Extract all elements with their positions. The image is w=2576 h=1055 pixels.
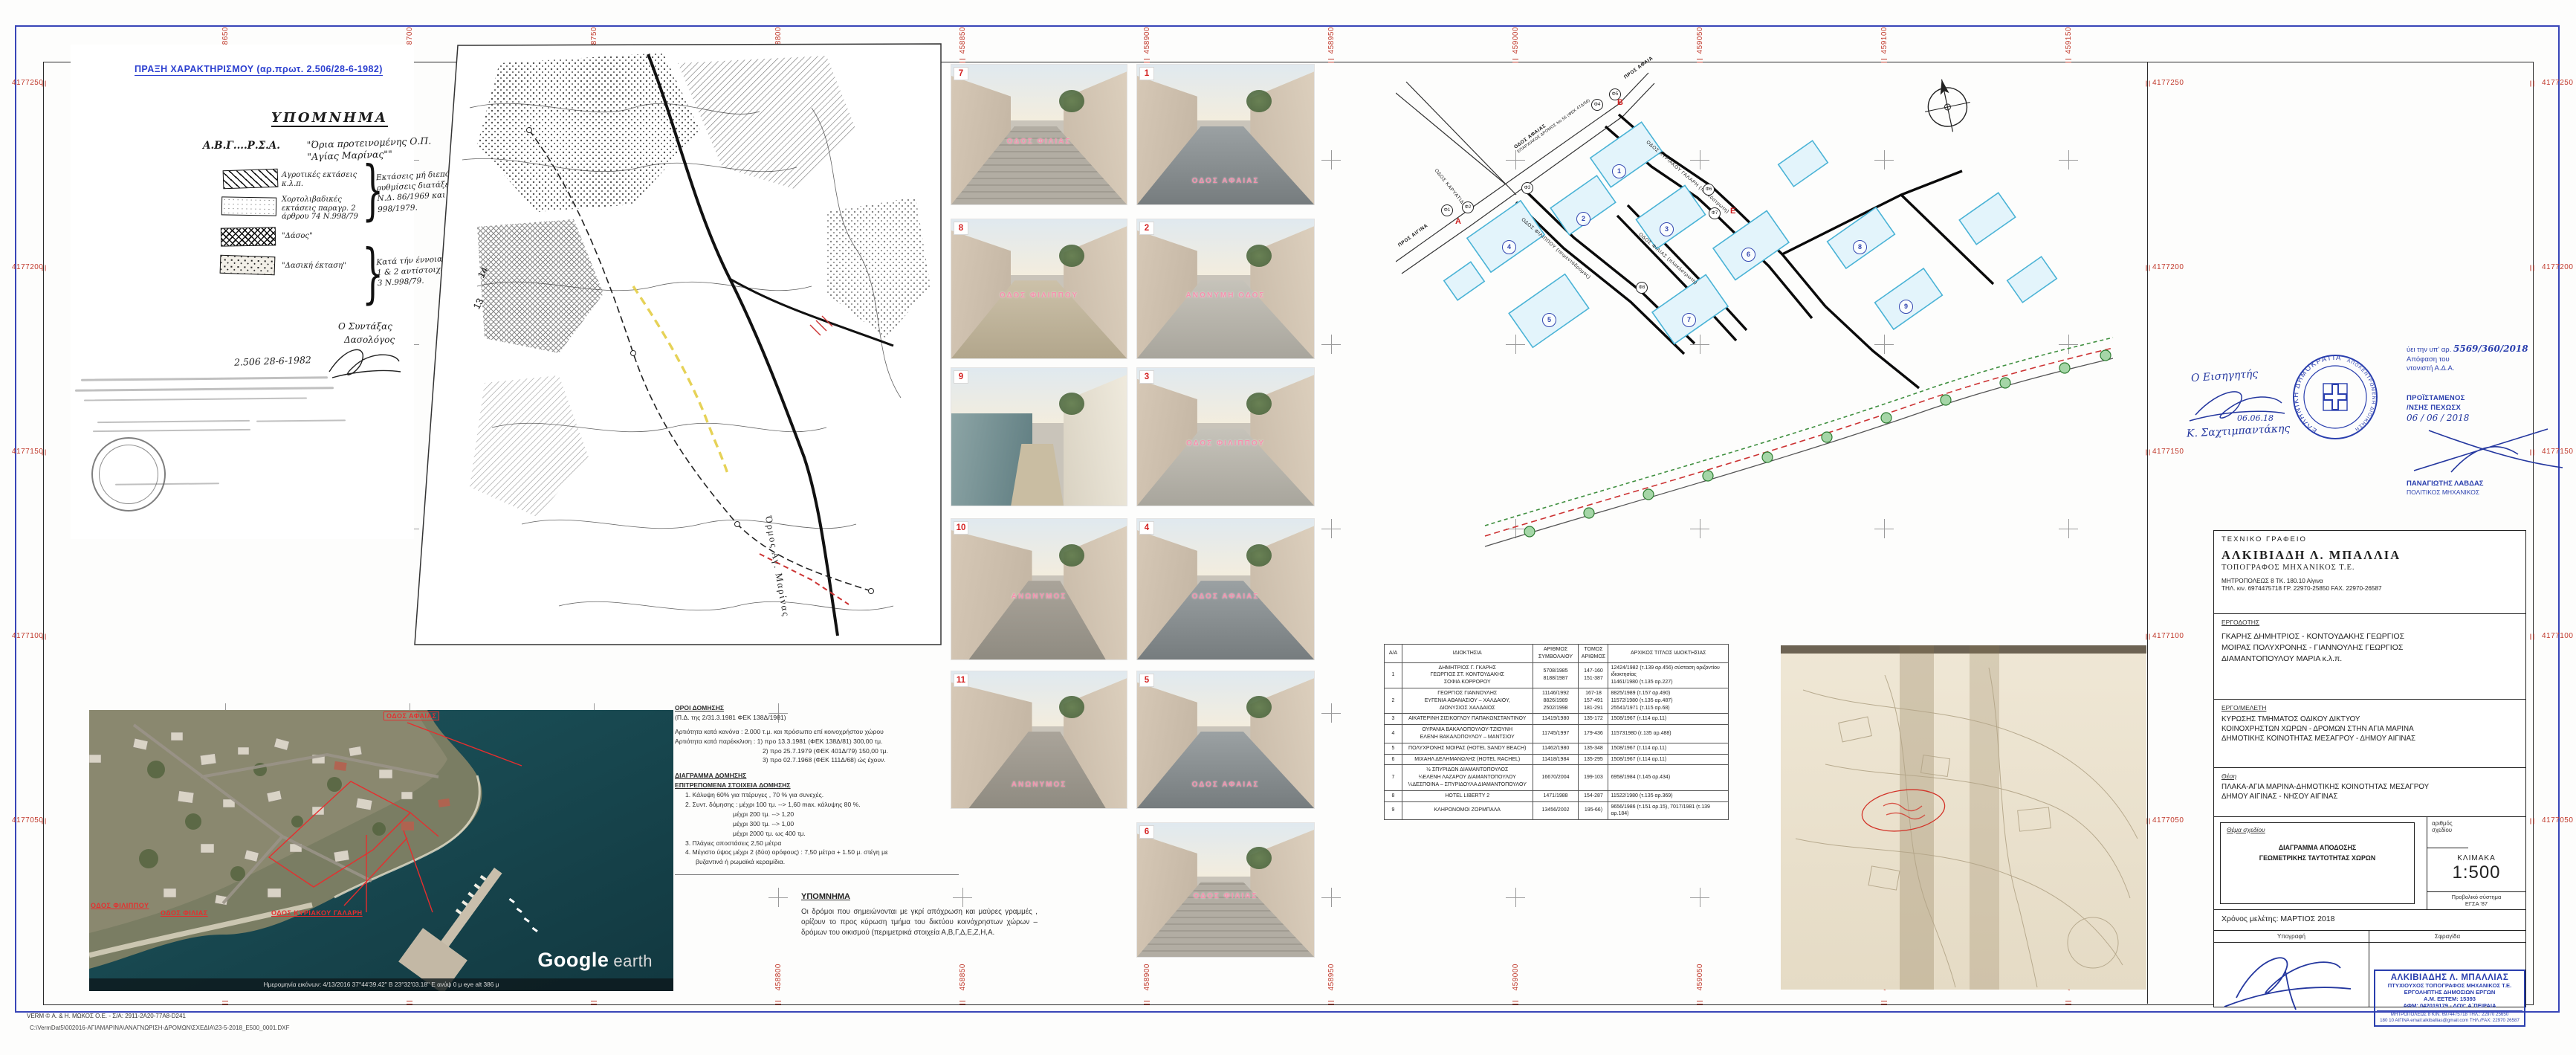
grid-label: 4177250 [12, 79, 43, 87]
subject-line-1: ΔΙΑΓΡΑΜΜΑ ΑΠΟΔΟΣΗΣ [2227, 844, 2408, 851]
grid-tick [2146, 450, 2150, 456]
north-arrow-icon [1921, 74, 1973, 134]
project-line: ΔΗΜΟΤΙΚΗΣ ΚΟΙΝΟΤΗΤΑΣ ΜΕΣΑΓΡΟΥ - ΔΗΜΟΥ ΑΙ… [2221, 735, 2518, 743]
boundary-vertex-Β: Β [1617, 98, 1623, 107]
parcel-number-3: 3 [1660, 222, 1674, 236]
terms-line: 3) προ 02.7.1968 (ΦΕΚ 111Δ/68) ώς έχουν. [675, 755, 959, 765]
tree-symbol [1524, 526, 1535, 537]
table-cell-contract: 11418/1984 [1533, 754, 1579, 765]
project-line: ΚΥΡΩΣΗΣ ΤΜΗΜΑΤΟΣ ΟΔΙΚΟΥ ΔΙΚΤΥΟΥ [2221, 715, 2518, 723]
office-address: ΜΗΤΡΟΠΟΛΕΩΣ 8 ΤΚ. 180.10 Αίγινα [2221, 578, 2518, 584]
legend-label-forest-area: "Δασική έκταση" [282, 262, 360, 271]
table-cell-title: 1508/1967 (τ.114 αρ.11) [1608, 743, 1729, 754]
google-wordmark: Google [537, 949, 609, 971]
photo-street-label: ΟΔΟΣ ΦΙΛΙΠΠΟΥ [1137, 439, 1314, 448]
table-row: 6ΜΙΧΑΗΛ ΔΕΛΗΜΑΝΩΛΗΣ (HOTEL RACHEL)11418/… [1385, 754, 1729, 765]
table-row: 1ΔΗΜΗΤΡΙΟΣ Γ. ΓΚΑΡΗΣΓΕΩΡΓΙΟΣ ΣΤ. ΚΟΝΤΟΥΔ… [1385, 662, 1729, 688]
photo-tree [1246, 245, 1272, 267]
grid-tick [42, 819, 46, 825]
photo-number-badge: 1 [1140, 68, 1153, 80]
grid-tick [1144, 1001, 1150, 1004]
photo-tree [1246, 393, 1272, 415]
smudged-text-line [256, 419, 346, 422]
grid-tick [959, 59, 965, 62]
engineer-stamp: ΑΛΚΙΒΙΑΔΗΣ Λ. ΜΠΑΛΛΙΑΣ ΠΤΥΧΙΟΥΧΟΣ ΤΟΠΟΓΡ… [2374, 969, 2525, 1027]
grid-label: 4177250 [2542, 79, 2573, 87]
grid-label: 4177050 [2152, 816, 2184, 825]
street-photo-7: ΟΔΟΣ ΦΙΛΙΑΣ7 [951, 65, 1127, 204]
stamp-line: 180 10 ΑΙΓΙΝΑ email:alkiballias@gmail.co… [2377, 1017, 2522, 1023]
photo-number-badge: 11 [954, 674, 968, 686]
terms-line: 1. Κάλυψη 60% για πτέρυγες , 70 % για συ… [675, 790, 959, 800]
drawing-number-label: αριθμός [2432, 820, 2464, 827]
photo-street-label: ΟΔΟΣ ΑΦΑΙΑΣ [1137, 781, 1314, 789]
terms-line: 2) προ 25.7.1979 (ΦΕΚ 401Δ/79) 150,00 τμ… [675, 746, 959, 756]
table-row: 3ΑΙΚΑΤΕΡΙΝΗ ΣΙΣΙΚΟΓΛΟΥ ΠΑΠΑΚΩΝΣΤΑΝΤΙΝΟΥ1… [1385, 714, 1729, 725]
grid-label: 4177100 [2152, 632, 2184, 640]
street-photo-5: ΟΔΟΣ ΑΦΑΙΑΣ5 [1137, 671, 1314, 808]
photo-number-badge: 6 [1140, 826, 1153, 838]
table-cell-contract: 11146/19928826/19892502/1998 [1533, 688, 1579, 713]
table-row: 2ΓΕΩΡΓΙΟΣ ΓΙΑΝΝΟΥΛΗΣΕΥΓΕΝΙΑ ΑΘΑΝΑΣΙΟΥ – … [1385, 688, 1729, 713]
cad-linework [1396, 59, 2135, 580]
approval-signature [2407, 425, 2570, 477]
svg-text:ΑΠΟΚΕΝΤΡΩΜΕΝΗ ΔΙΟΙΚΗΣΗ: ΑΠΟΚΕΝΤΡΩΜΕΝΗ ΔΙΟΙΚΗΣΗ [2346, 358, 2376, 432]
old-boundary-map-scan [1781, 645, 2146, 990]
photo-street-label: ΟΔΟΣ ΦΙΛΙΑΣ [1137, 892, 1314, 900]
grid-tick [2531, 81, 2534, 87]
terms-line: 2. Συντ. δόμησης : μέχρι 100 τμ. --> 1,6… [675, 800, 959, 810]
photo-number-badge: 7 [954, 68, 968, 80]
table-cell-tome: 154-287 [1579, 790, 1608, 801]
tree-symbol [1941, 395, 1951, 405]
satellite-status-bar: Ημερομηνία εικόνων: 4/13/2016 37°44'39.4… [89, 978, 673, 991]
photos-note-title: ΥΠΟΜΝΗΜΑ [801, 892, 1038, 901]
project-label: ΕΡΓΟ/ΜΕΛΕΤΗ [2221, 704, 2518, 712]
signature-cell: Υπογραφή [2214, 931, 2369, 1007]
projection-cell: Προβολικό σύστημα ΕΓΣΑ '87 [2427, 891, 2525, 910]
grid-label: 4177200 [12, 263, 43, 271]
table-cell-contract: 11419/1980 [1533, 714, 1579, 725]
grid-label: 458900 [1143, 964, 1151, 990]
street-photo-3: ΟΔΟΣ ΦΙΛΙΠΠΟΥ3 [1137, 368, 1314, 506]
approval-number: 5569/360/2018 [2453, 343, 2528, 354]
table-cell-contract: 13456/2002 [1533, 801, 1579, 820]
approval-name: ΠΑΝΑΓΙΩΤΗΣ ΛΑΒΔΑΣ [2407, 480, 2576, 488]
grid-tick [2146, 81, 2150, 87]
grid-tick [2146, 265, 2150, 271]
stamp-caption: Σφραγίδα [2369, 931, 2525, 943]
grid-label: 459100 [1880, 27, 1889, 54]
grid-tick [1697, 1001, 1703, 1004]
subject-box: Θέμα σχεδίου ΔΙΑΓΡΑΜΜΑ ΑΠΟΔΟΣΗΣ ΓΕΩΜΕΤΡΙ… [2220, 822, 2415, 904]
parcel-number-1: 1 [1612, 164, 1626, 178]
tree-symbol [1703, 471, 1713, 481]
table-cell-title: 1508/1967 (τ.114 αρ.11) [1608, 754, 1729, 765]
grid-label: 459050 [1696, 964, 1704, 990]
legend-swatch-forest [221, 227, 276, 246]
table-row: 9ΚΛΗΡΟΝΟΜΟΙ ΖΟΡΜΠΑΛΑ13456/2002195-66)965… [1385, 801, 1729, 820]
photo-number-badge: 4 [1140, 522, 1153, 534]
office-label: ΤΕΧΝΙΚΟ ΓΡΑΦΕΙΟ [2221, 535, 2518, 543]
photo-street-label: ΟΔΟΣ ΦΙΛΙΠΠΟΥ [951, 291, 1127, 300]
grid-tick [591, 1001, 597, 1004]
stamp-line: ΕΡΓΟΛΗΠΤΗΣ ΔΗΜΟΣΙΩΝ ΕΡΓΩΝ [2377, 989, 2522, 996]
round-stamp [91, 437, 166, 512]
grid-tick [1144, 59, 1150, 62]
photo-tree [1246, 544, 1272, 567]
street-photo-2: ΑΝΩΝΥΜΗ ΟΔΟΣ2 [1137, 219, 1314, 358]
satellite-image: ΟΔΟΣ ΑΦΑΙΑΣ ΟΔΟΣ ΦΙΛΙΠΠΟΥ ΟΔΟΣ ΦΙΛΙΑΣ ΟΔ… [89, 710, 673, 991]
boundary-vertex-Α: Α [1455, 217, 1461, 226]
table-cell-owner: ΓΕΩΡΓΙΟΣ ΓΙΑΝΝΟΥΛΗΣΕΥΓΕΝΙΑ ΑΘΑΝΑΣΙΟΥ – Χ… [1402, 688, 1533, 713]
stamp-line: ΜΗΤΡΟΠΟΛΕΩΣ 8 ΚΙΝ. 6974475718 ΤΗΛ.: 2297… [2377, 1010, 2522, 1017]
stamp-line: Α.Μ. ΕΕΤΕΜ: 15393 [2377, 996, 2522, 1002]
stamp-line: ΠΤΥΧΙΟΥΧΟΣ ΤΟΠΟΓΡΑΦΟΣ ΜΗΧΑΝΙΚΟΣ Τ.Ε. [2377, 982, 2522, 989]
signature-row: Υπογραφή Σφραγίδα ΑΛΚΙΒΙΑΔΗΣ Λ. ΜΠΑΛΛΙΑΣ… [2214, 931, 2525, 1007]
dxf-file-path: C:\VermDat5\002016-ΑΓΙΑΜΑΡΙΝΑ\ΑΝΑΓΝΩΡΙΣΗ… [30, 1025, 290, 1031]
employer-line: ΔΙΑΜΑΝΤΟΠΟΥΛΟΥ ΜΑΡΙΑ κ.λ.π. [2221, 654, 2518, 663]
table-cell-tome: 199-103 [1579, 765, 1608, 790]
cad-street-plan: ΟΔΟΣ ΑΦΑΙΑΣΕΠΑΡΧΙΑΚΟΣ ΔΡΟΜΟΣ Νο 56 (ΦΕΚ … [1396, 59, 2135, 580]
table-row: 7½ ΣΠΥΡΙΔΩΝ ΔΙΑΜΑΝΤΟΠΟΥΛΟΣ¼ΕΛΕΝΗ ΛΑΖΑΡΟΥ… [1385, 765, 1729, 790]
title-block: ΤΕΧΝΙΚΟ ΓΡΑΦΕΙΟ ΑΛΚΙΒΙΑΔΗ Λ. ΜΠΑΛΛΙΑ ΤΟΠ… [2213, 530, 2526, 1007]
approval-head: /ΝΣΗΣ ΠΕΧΩΣΧ [2407, 404, 2576, 413]
photo-tree [1059, 245, 1084, 267]
titleblock-divider [2147, 62, 2148, 1004]
boundary-code: Α.Β.Γ....Ρ.Σ.Α. [203, 140, 280, 152]
photo-point-Φ8: Φ8 [1636, 282, 1648, 294]
state-seal: ΕΛΛΗΝΙΚΗ ΔΗΜΟΚΡΑΤΙΑ ΑΠΟΚΕΝΤΡΩΜΕΝΗ ΔΙΟΙΚΗ… [2291, 348, 2380, 459]
sat-label-galari: ΟΔΟΣ ΚΥΡΙΑΚΟΥ ΓΑΛΑΡΗ [271, 909, 363, 917]
table-header: ΑΡΙΘΜΟΣ ΣΥΜΒΟΛΑΙΟΥ [1533, 645, 1579, 663]
grid-label: 4177100 [2542, 632, 2573, 640]
tree-symbol [1822, 432, 1832, 442]
grid-tick [42, 81, 46, 87]
tree-symbol [2000, 378, 2010, 388]
location-line: ΠΛΑΚΑ-ΑΓΙΑ ΜΑΡΙΝΑ-ΔΗΜΟΤΙΚΗΣ ΚΟΙΝΟΤΗΤΑΣ Μ… [2221, 783, 2518, 791]
parcel-number-6: 6 [1741, 248, 1755, 262]
table-cell-title: 8825/1989 (τ.157 αρ.490)11572/1980 (τ.13… [1608, 688, 1729, 713]
table-cell-owner: HOTEL LIBERTY 2 [1402, 790, 1533, 801]
grid-label: 4177200 [2542, 263, 2573, 271]
grid-label: 458850 [959, 964, 967, 990]
grid-tick [222, 1001, 228, 1004]
photo-point-Φ7: Φ7 [1709, 207, 1721, 219]
forest-date-line: 2.506 28-6-1982 [234, 354, 311, 368]
employer-line: ΓΚΑΡΗΣ ΔΗΜΗΤΡΙΟΣ - ΚΟΝΤΟΥΔΑΚΗΣ ΓΕΩΡΓΙΟΣ [2221, 632, 2518, 641]
smudged-text-line [84, 397, 307, 401]
table-cell-tome: 179-436 [1579, 725, 1608, 743]
location-section: Θέση ΠΛΑΚΑ-ΑΓΙΑ ΜΑΡΙΝΑ-ΔΗΜΟΤΙΚΗΣ ΚΟΙΝΟΤΗ… [2214, 768, 2525, 817]
photo-number-badge: 9 [954, 371, 968, 383]
table-header: ΙΔΙΟΚΤΗΣΙΑ [1402, 645, 1533, 663]
photo-point-Φ3: Φ3 [1521, 182, 1533, 194]
photo-street-label: ΟΔΟΣ ΑΦΑΙΑΣ [1137, 177, 1314, 185]
approval-role: ΠΟΛΙΤΙΚΟΣ ΜΗΧΑΝΙΚΟΣ [2407, 488, 2576, 497]
employer-line: ΜΟΙΡΑΣ ΠΟΛΥΧΡΟΝΗΣ - ΓΙΑΝΝΟΥΛΗΣ ΓΕΩΡΓΙΟΣ [2221, 643, 2518, 652]
photo-point-Φ2: Φ2 [1462, 201, 1474, 213]
subject-line-2: ΓΕΩΜΕΤΡΙΚΗΣ ΤΑΥΤΟΤΗΤΑΣ ΧΩΡΩΝ [2227, 854, 2408, 862]
table-cell-contract: 5708/19858188/1987 [1533, 662, 1579, 688]
grid-label: 4177150 [2152, 448, 2184, 456]
grid-label: 459150 [2065, 27, 2073, 54]
grid-tick [1328, 59, 1334, 62]
office-name: ΑΛΚΙΒΙΑΔΗ Λ. ΜΠΑΛΛΙΑ [2221, 548, 2518, 563]
table-cell-aa: 5 [1385, 743, 1402, 754]
approval-line: ντονιστή Α.Δ.Α. [2407, 364, 2576, 373]
photos-note-body: Οι δρόμοι που σημειώνονται με γκρί απόχρ… [801, 907, 1038, 939]
table-row: 5ΠΟΛΥΧΡΟΝΗΣ ΜΟΙΡΑΣ (HOTEL SANDY BEACH)11… [1385, 743, 1729, 754]
table-row: 8HOTEL LIBERTY 21471/1988154-28711522/19… [1385, 790, 1729, 801]
earth-wordmark: earth [613, 952, 653, 970]
table-cell-owner: ΔΗΜΗΤΡΙΟΣ Γ. ΓΚΑΡΗΣΓΕΩΡΓΙΟΣ ΣΤ. ΚΟΝΤΟΥΔΑ… [1402, 662, 1533, 688]
tree-symbol [2059, 363, 2070, 373]
boundary-vertex-Ε: Ε [1730, 207, 1735, 216]
tree-symbol [1881, 413, 1891, 423]
table-cell-title: 11522/1980 (τ.135 αρ.369) [1608, 790, 1729, 801]
terms-line: μέχρι 200 τμ. --> 1,20 [675, 810, 959, 819]
table-cell-title: 1508/1967 (τ.114 αρ.11) [1608, 714, 1729, 725]
grid-label: 4177250 [2152, 79, 2184, 87]
photo-tree [1246, 696, 1272, 718]
table-cell-tome: 147-160151-387 [1579, 662, 1608, 688]
terms-line: 3. Πλάγιες αποστάσεις 2,50 μέτρα [675, 839, 959, 848]
projection-label: Προβολικό σύστημα [2427, 894, 2525, 900]
legend-swatch-grassland [221, 196, 276, 216]
grid-tick [42, 634, 46, 640]
table-cell-aa: 6 [1385, 754, 1402, 765]
terms-heading: ΟΡΟΙ ΔΟΜΗΣΗΣ [675, 703, 959, 713]
street-photo-9: 9 [951, 368, 1127, 506]
table-cell-aa: 8 [1385, 790, 1402, 801]
terms-line: (Π.Δ. της 2/31.3.1981 ΦΕΚ 138Δ/1981) [675, 713, 959, 723]
employer-label: ΕΡΓΟΔΟΤΗΣ [2221, 619, 2518, 626]
table-cell-title: 115731980 (τ.135 αρ.488) [1608, 725, 1729, 743]
parcel-number-5: 5 [1542, 313, 1556, 327]
street-photo-6: ΟΔΟΣ ΦΙΛΙΑΣ6 [1137, 823, 1314, 957]
table-header: ΑΡΧΙΚΟΣ ΤΙΤΛΟΣ ΙΔΙΟΚΤΗΣΙΑΣ [1608, 645, 1729, 663]
grid-tick [959, 1001, 965, 1004]
project-section: ΕΡΓΟ/ΜΕΛΕΤΗ ΚΥΡΩΣΗΣ ΤΜΗΜΑΤΟΣ ΟΔΙΚΟΥ ΔΙΚΤ… [2214, 700, 2525, 768]
approval-line: ύει την υπ' αρ. [2407, 346, 2451, 354]
scale-label: ΚΛΙΜΑΚΑ [2427, 854, 2525, 862]
table-cell-owner: ΜΙΧΑΗΛ ΔΕΛΗΜΑΝΩΛΗΣ (HOTEL RACHEL) [1402, 754, 1533, 765]
grid-label: 458950 [1327, 27, 1336, 54]
grid-label: 459050 [1696, 27, 1704, 54]
table-header: ΤΟΜΟΣ ΑΡΙΘΜΟΣ [1579, 645, 1608, 663]
table-cell-aa: 4 [1385, 725, 1402, 743]
office-role: ΤΟΠΟΓΡΑΦΟΣ ΜΗΧΑΝΙΚΟΣ Τ.Ε. [2221, 564, 2518, 572]
grid-label: 458950 [1327, 964, 1336, 990]
parcel-number-7: 7 [1682, 313, 1696, 327]
photo-point-Φ1: Φ1 [1441, 204, 1453, 216]
sat-label-afeas: ΟΔΟΣ ΑΦΑΙΑΣ [384, 712, 439, 720]
grid-tick [2146, 634, 2150, 640]
office-phone: ΤΗΛ. κιν. 6974475718 ΓΡ. 22970-25850 FAX… [2221, 585, 2518, 592]
photo-street-label: ΟΔΟΣ ΦΙΛΙΑΣ [951, 138, 1127, 146]
photo-street-label: ΑΝΩΝΥΜΟΣ [951, 593, 1127, 601]
photo-number-badge: 10 [954, 522, 968, 534]
legend-swatch-forest-area [220, 255, 276, 276]
building-terms: ΟΡΟΙ ΔΟΜΗΣΗΣ (Π.Δ. της 2/31.3.1981 ΦΕΚ 1… [675, 703, 959, 879]
grid-tick [42, 450, 46, 456]
subject-label: Θέμα σχεδίου [2227, 826, 2408, 833]
approval-stamp: ύει την υπ' αρ. 5569/360/2018 Απόφαση το… [2407, 343, 2576, 497]
table-cell-tome: 195-66) [1579, 801, 1608, 820]
table-cell-owner: ½ ΣΠΥΡΙΔΩΝ ΔΙΑΜΑΝΤΟΠΟΥΛΟΣ¼ΕΛΕΝΗ ΛΑΖΑΡΟΥ … [1402, 765, 1533, 790]
table-cell-tome: 167-18157-491181-291 [1579, 688, 1608, 713]
grid-tick [2531, 265, 2534, 271]
forest-legend-title: ΥΠΟΜΝΗΜΑ [271, 110, 388, 127]
table-cell-title: 9656/1986 (τ.151 αρ.15), 7017/1981 (τ.13… [1608, 801, 1729, 820]
parcel-number-2: 2 [1576, 212, 1590, 226]
terms-line: μέχρι 2000 τμ. ως 400 τμ. [675, 829, 959, 839]
table-cell-owner: ΠΟΛΥΧΡΟΝΗΣ ΜΟΙΡΑΣ (HOTEL SANDY BEACH) [1402, 743, 1533, 754]
table-cell-tome: 135-348 [1579, 743, 1608, 754]
tree-symbol [2100, 350, 2111, 361]
grid-tick [42, 265, 46, 271]
grid-label: 459000 [1512, 27, 1520, 54]
grid-tick [1328, 1001, 1334, 1004]
table-cell-contract: 11745/1997 [1533, 725, 1579, 743]
photo-street-label: ΑΝΩΝΥΜΗ ΟΔΟΣ [1137, 291, 1314, 300]
table-cell-aa: 7 [1385, 765, 1402, 790]
photo-tree [1246, 90, 1272, 112]
street-photo-8: ΟΔΟΣ ΦΙΛΙΠΠΟΥ8 [951, 219, 1127, 358]
street-photo-4: ΟΔΟΣ ΑΦΑΙΑΣ4 [1137, 519, 1314, 659]
photo-tree [1059, 90, 1084, 112]
photo-number-badge: 2 [1140, 222, 1153, 234]
terms-line: βυζαντινά ή ρωμαϊκά κεραμίδια. [675, 857, 959, 867]
smudged-text-line [93, 429, 250, 432]
engineer-signature [2214, 946, 2363, 1013]
table-cell-tome: 135-295 [1579, 754, 1608, 765]
table-cell-contract: 16670/2004 [1533, 765, 1579, 790]
employer-section: ΕΡΓΟΔΟΤΗΣ ΓΚΑΡΗΣ ΔΗΜΗΤΡΙΟΣ - ΚΟΝΤΟΥΔΑΚΗΣ… [2214, 614, 2525, 700]
stamp-cell: Σφραγίδα ΑΛΚΙΒΙΑΔΗΣ Λ. ΜΠΑΛΛΙΑΣ ΠΤΥΧΙΟΥΧ… [2369, 931, 2525, 1007]
signature-caption: Υπογραφή [2214, 931, 2369, 943]
parcel-number-8: 8 [1853, 240, 1867, 254]
scale-cell: ΚΛΙΜΑΚΑ 1:500 [2427, 848, 2525, 891]
street-photo-11: ΑΝΩΝΥΜΟΣ11 [951, 671, 1127, 808]
grid-label: 458850 [959, 27, 967, 54]
forest-signature-scribble [323, 342, 405, 384]
parcel-number-4: 4 [1502, 240, 1516, 254]
signer-role-1: Ο Συντάξας [338, 321, 392, 332]
table-cell-aa: 1 [1385, 662, 1402, 688]
parcel-number-9: 9 [1899, 300, 1913, 314]
approval-line: Απόφαση του [2407, 355, 2576, 364]
grid-tick [2531, 634, 2534, 640]
location-label: Θέση [2221, 772, 2518, 780]
photo-number-badge: 3 [1140, 371, 1153, 383]
study-time: Χρόνος μελέτης: ΜΑΡΤΙΟΣ 2018 [2214, 910, 2525, 931]
photo-point-Φ4: Φ4 [1591, 99, 1603, 111]
terms-line: 4. Μέγιστο ύψος μέχρι 2 (δύο) ορόφους) :… [675, 848, 959, 857]
table-cell-contract: 11462/1980 [1533, 743, 1579, 754]
legend-swatch-agricultural [223, 169, 279, 190]
tree-symbol [1762, 452, 1773, 462]
reviewer-date: 06.06.18 [2237, 413, 2274, 423]
google-earth-logo: Googleearth [537, 949, 653, 972]
smudged-text-line [81, 376, 328, 381]
grid-label: 4177100 [12, 632, 43, 640]
ownership-table: Α/ΑΙΔΙΟΚΤΗΣΙΑΑΡΙΘΜΟΣ ΣΥΜΒΟΛΑΙΟΥΤΟΜΟΣ ΑΡΙ… [1384, 644, 1729, 820]
table-cell-owner: ΟΥΡΑΝΙΑ ΒΑΚΑΛΟΠΟΥΛΟΥ-ΤΖΙΟΥΝΗΕΛΕΝΗ ΒΑΚΑΛΟ… [1402, 725, 1533, 743]
photo-number-badge: 8 [954, 222, 968, 234]
table-cell-tome: 135-172 [1579, 714, 1608, 725]
grid-tick [1512, 1001, 1518, 1004]
photo-street-label: ΑΝΩΝΥΜΟΣ [951, 781, 1127, 789]
grid-tick [2065, 1001, 2071, 1004]
scale-value: 1:500 [2427, 862, 2525, 883]
street-photo-1: ΟΔΟΣ ΑΦΑΙΑΣ1 [1137, 65, 1314, 204]
terms-subheading: ΔΙΑΓΡΑΜΜΑ ΔΟΜΗΣΗΣ [675, 771, 959, 781]
terms-subheading: ΕΠΙΤΡΕΠΟΜΕΝΑ ΣΤΟΙΧΕΙΑ ΔΟΜΗΣΗΣ [675, 781, 959, 790]
drawing-sheet: 4586504586504587004587004587504587504588… [0, 0, 2576, 1055]
smudged-text-line [75, 387, 334, 392]
street-photo-10: ΑΝΩΝΥΜΟΣ10 [951, 519, 1127, 659]
grid-label: 459000 [1512, 964, 1520, 990]
projection-value: ΕΓΣΑ '87 [2427, 900, 2525, 907]
smudged-text-line [97, 420, 250, 423]
tree-symbol [1643, 489, 1654, 500]
grid-label: 4177150 [12, 448, 43, 456]
table-row: 4ΟΥΡΑΝΙΑ ΒΑΚΑΛΟΠΟΥΛΟΥ-ΤΖΙΟΥΝΗΕΛΕΝΗ ΒΑΚΑΛ… [1385, 725, 1729, 743]
approval-head: ΠΡΟΪΣΤΑΜΕΝΟΣ [2407, 394, 2576, 403]
praxi-header: ΠΡΑΞΗ ΧΑΡΑΚΤΗΡΙΣΜΟΥ (αρ.πρωτ. 2.506/28-6… [135, 64, 383, 76]
grid-label: 4177050 [2542, 816, 2573, 825]
legend-label-forest: "Δάσος" [282, 232, 360, 241]
approval-date: 06 / 06 / 2018 [2407, 413, 2576, 425]
grid-tick [775, 1001, 781, 1004]
grid-label: 4177050 [12, 816, 43, 825]
grid-label: 4177200 [2152, 263, 2184, 271]
photo-street-label: ΟΔΟΣ ΑΦΑΙΑΣ [1137, 593, 1314, 601]
terms-line: Αρτιότητα κατά κανόνα : 2.000 τ.μ. και π… [675, 727, 959, 737]
tree-symbol [1584, 508, 1594, 518]
drawing-number-cell: αριθμός σχεδίου [2427, 817, 2468, 848]
table-cell-owner: ΚΛΗΡΟΝΟΜΟΙ ΖΟΡΜΠΑΛΑ [1402, 801, 1533, 820]
legend-label-agricultural: Αγροτικές εκτάσεις κ.λ.π. [282, 171, 360, 188]
location-line: ΔΗΜΟΥ ΑΙΓΙΝΑΣ - ΝΗΣΟΥ ΑΙΓΙΝΑΣ [2221, 793, 2518, 801]
photo-point-Φ6: Φ6 [1703, 184, 1715, 196]
stamp-line: ΑΦΜ: 042019179 - ΔΟΥ: Α΄ΠΕΙΡΑΙΑ [2377, 1002, 2522, 1009]
sat-label-filippou: ΟΔΟΣ ΦΙΛΙΠΠΟΥ [91, 902, 149, 909]
plot-license-text: VERM © Α. & Η. ΜΩΚΟΣ Ο.Ε. - Σ/Α: 2911-2Α… [27, 1013, 186, 1019]
table-cell-contract: 1471/1988 [1533, 790, 1579, 801]
project-line: ΚΟΙΝΟΧΡΗΣΤΩΝ ΧΩΡΩΝ - ΔΡΟΜΩΝ ΣΤΗΝ ΑΓΙΑ ΜΑ… [2221, 725, 2518, 733]
grid-label: 458800 [774, 964, 783, 990]
table-cell-aa: 9 [1385, 801, 1402, 820]
photo-number-badge: 5 [1140, 674, 1153, 686]
legend-label-grassland: Χορτολιβαδικές εκτάσεις παραγρ. 2 άρθρου… [282, 196, 360, 222]
grid-label: 458900 [1143, 27, 1151, 54]
table-header: Α/Α [1385, 645, 1402, 663]
table-cell-aa: 2 [1385, 688, 1402, 713]
terms-line: μέχρι 300 τμ. --> 1,00 [675, 819, 959, 829]
terms-line: Αρτιότητα κατά παρέκκλιση : 1) προ 13.3.… [675, 737, 959, 746]
survey-map-scan: Όρμος Αγ. Μαρίνας 14 13 [410, 41, 945, 649]
grid-tick [1881, 1001, 1887, 1004]
office-section: ΤΕΧΝΙΚΟ ΓΡΑΦΕΙΟ ΑΛΚΙΒΙΑΔΗ Λ. ΜΠΑΛΛΙΑ ΤΟΠ… [2214, 531, 2525, 614]
grid-tick [2146, 819, 2150, 825]
table-cell-owner: ΑΙΚΑΤΕΡΙΝΗ ΣΙΣΙΚΟΓΛΟΥ ΠΑΠΑΚΩΝΣΤΑΝΤΙΝΟΥ [1402, 714, 1533, 725]
photos-note: ΥΠΟΜΝΗΜΑ Οι δρόμοι που σημειώνονται με γ… [801, 892, 1038, 939]
table-cell-title: 12424/1982 (τ.139 αρ.456) σύσταση οριζον… [1608, 662, 1729, 688]
stamp-line: ΑΛΚΙΒΙΑΔΗΣ Λ. ΜΠΑΛΛΙΑΣ [2377, 973, 2522, 982]
